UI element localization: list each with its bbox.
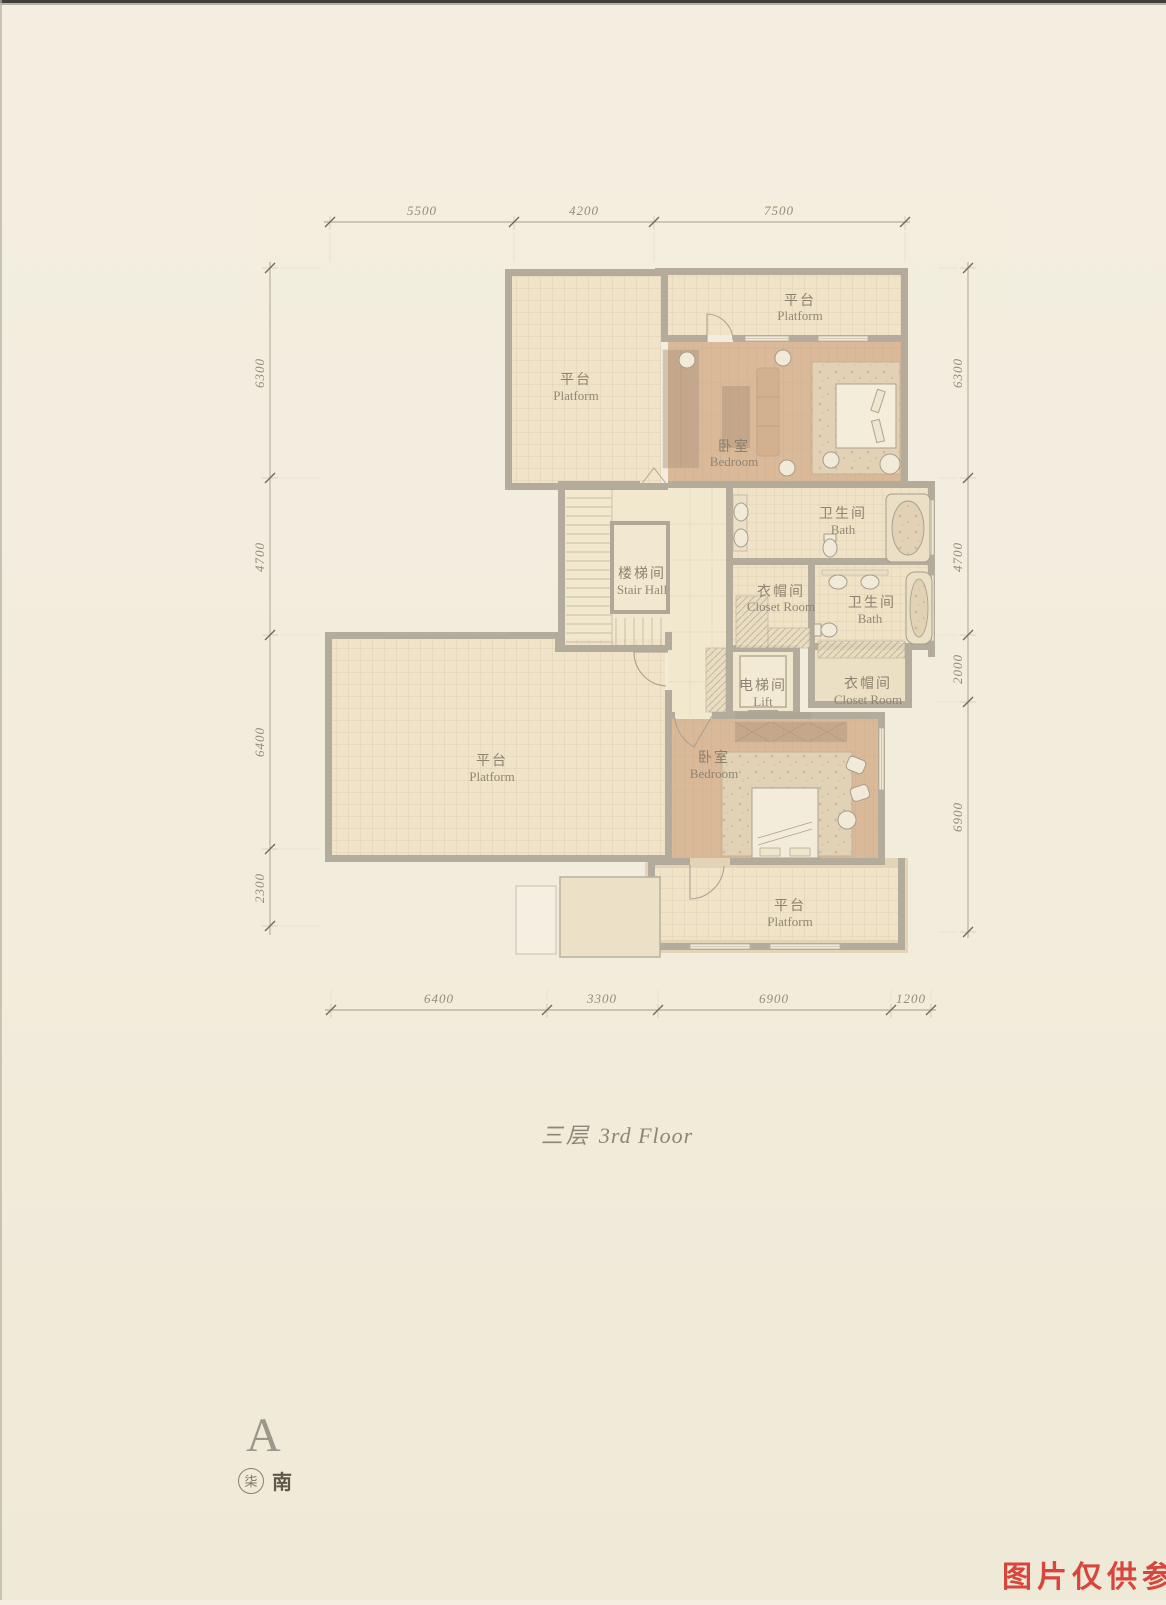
dim-bottom-4: 1200 — [896, 991, 926, 1006]
svg-text:电梯间: 电梯间 — [739, 678, 787, 694]
floor-plan: 5500 4200 7500 6300 4700 6400 2300 6300 … — [0, 0, 1166, 1600]
svg-text:衣帽间: 衣帽间 — [844, 676, 892, 692]
dim-left-1: 6300 — [252, 358, 267, 388]
svg-text:平台: 平台 — [784, 293, 816, 309]
svg-text:Platform: Platform — [767, 914, 813, 929]
svg-text:楼梯间: 楼梯间 — [618, 566, 666, 582]
floor-title-zh: 三层 — [541, 1123, 591, 1148]
dim-right-1: 6300 — [950, 358, 965, 388]
south-direction-label: 南 — [272, 1466, 292, 1495]
svg-text:Bath: Bath — [858, 611, 883, 626]
unit-type-letter: A — [246, 1412, 358, 1460]
dim-top-1: 5500 — [407, 203, 437, 218]
svg-text:Platform: Platform — [469, 769, 515, 784]
dim-top-2: 4200 — [569, 203, 599, 218]
dim-right-4: 6900 — [950, 802, 965, 832]
svg-text:Bath: Bath — [831, 522, 856, 537]
dim-bottom-2: 3300 — [586, 991, 617, 1006]
room-label-closet-mid: 衣帽间 Closet Room — [747, 584, 815, 614]
svg-text:Closet Room: Closet Room — [834, 692, 902, 707]
reference-watermark: 图片仅供参考 — [1002, 1552, 1166, 1596]
page-title: 三层3rd Floor — [467, 1118, 767, 1150]
dim-left-4: 2300 — [252, 873, 267, 903]
compass-block: A 柒 南 — [238, 1412, 358, 1495]
svg-text:Stair Hall: Stair Hall — [617, 582, 668, 597]
svg-text:卧室: 卧室 — [698, 749, 730, 766]
room-label-stair-hall: 楼梯间 Stair Hall — [617, 566, 668, 597]
floor-plan-drawing: 5500 4200 7500 6300 4700 6400 2300 6300 … — [0, 0, 1166, 1600]
svg-text:卫生间: 卫生间 — [819, 506, 867, 522]
dim-bottom-1: 6400 — [424, 991, 454, 1006]
svg-text:卫生间: 卫生间 — [848, 595, 896, 611]
dim-left-3: 6400 — [252, 727, 267, 757]
dim-left-2: 4700 — [252, 542, 267, 572]
floor-title-en: 3rd Floor — [599, 1123, 693, 1148]
room-label-platform-top-left: 平台 Platform — [553, 372, 599, 403]
room-label-platform-bottom: 平台 Platform — [767, 898, 813, 929]
svg-text:Lift: Lift — [753, 694, 773, 709]
dim-right-2: 4700 — [950, 542, 965, 572]
scanned-floorplan-page: { "document": { "floor_title_zh": "三层", … — [0, 0, 1166, 1600]
svg-text:平台: 平台 — [774, 898, 806, 914]
room-label-closet-right: 衣帽间 Closet Room — [834, 676, 902, 707]
dim-right-3: 2000 — [950, 654, 965, 684]
svg-text:平台: 平台 — [476, 753, 508, 769]
svg-text:平台: 平台 — [560, 372, 592, 388]
svg-text:Platform: Platform — [777, 308, 823, 323]
dim-top-3: 7500 — [764, 203, 794, 218]
room-label-platform-top: 平台 Platform — [777, 293, 823, 323]
room-label-platform-left: 平台 Platform — [469, 753, 515, 784]
svg-text:Bedroom: Bedroom — [710, 454, 758, 469]
svg-text:Bedroom: Bedroom — [690, 766, 738, 781]
dim-bottom-3: 6900 — [759, 991, 789, 1006]
svg-text:Closet Room: Closet Room — [747, 599, 815, 614]
seal-icon: 柒 — [238, 1468, 264, 1494]
svg-text:Platform: Platform — [553, 388, 599, 403]
svg-text:卧室: 卧室 — [718, 438, 750, 455]
svg-text:衣帽间: 衣帽间 — [757, 584, 805, 600]
